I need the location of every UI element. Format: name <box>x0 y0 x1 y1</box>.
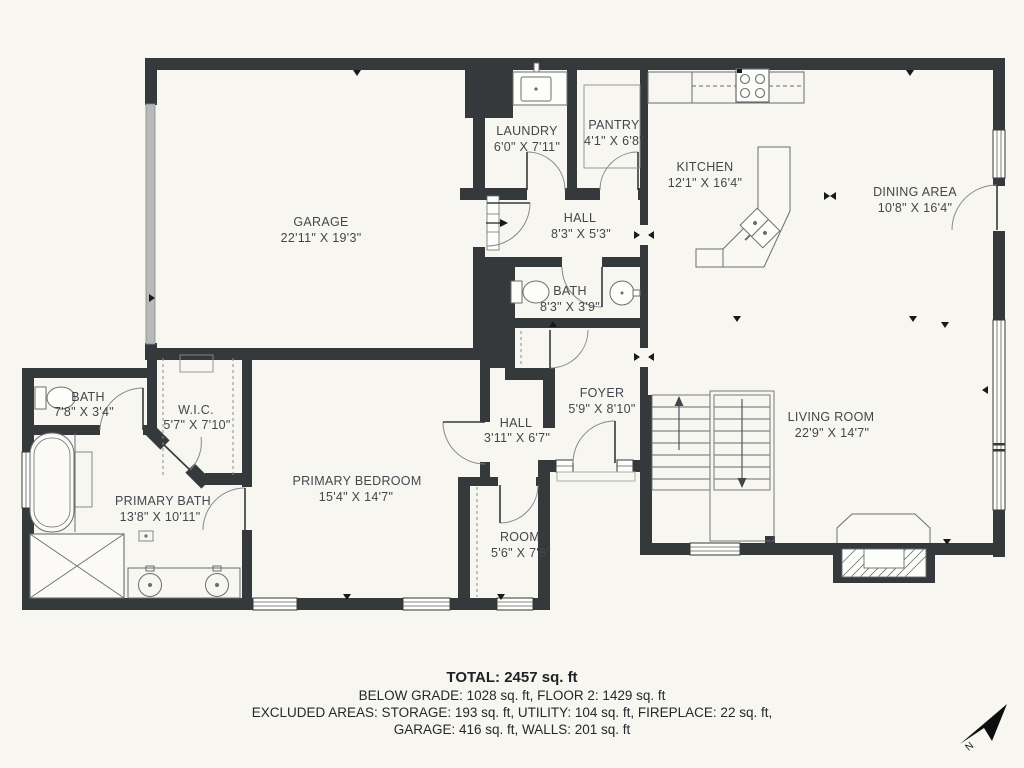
room-dims-bath-upper: 8'3" X 3'9" <box>540 300 600 314</box>
below-grade-text: BELOW GRADE: 1028 sq. ft, FLOOR 2: 1429 … <box>359 688 666 703</box>
room-label-laundry: LAUNDRY <box>496 124 558 138</box>
room-label-hall-upper: HALL <box>564 211 596 225</box>
stove-icon <box>736 69 769 102</box>
window <box>403 598 450 610</box>
room-dims-kitchen: 12'1" X 16'4" <box>668 176 743 190</box>
stairs-up-arrow-icon <box>675 396 684 450</box>
wall-diagonal-segments <box>149 429 206 484</box>
excluded-areas-text-2: GARAGE: 416 sq. ft, WALLS: 201 sq. ft <box>394 722 631 737</box>
bathtub-icon <box>30 433 92 532</box>
window-divider <box>993 443 1005 446</box>
room-label-primary-bath: PRIMARY BATH <box>115 494 211 508</box>
room-label-primary-bedroom: PRIMARY BEDROOM <box>292 474 421 488</box>
room-label-garage: GARAGE <box>293 215 348 229</box>
window <box>993 130 1005 178</box>
window <box>690 543 740 555</box>
door-arc <box>500 485 538 523</box>
room-label-bath-upper: BATH <box>553 284 587 298</box>
room-dims-foyer: 5'9" X 8'10" <box>568 402 635 416</box>
room-dims-hall-upper: 8'3" X 5'3" <box>551 227 611 241</box>
total-area-text: TOTAL: 2457 sq. ft <box>446 669 577 686</box>
north-arrow-icon: N <box>960 704 1007 753</box>
room-dims-primary-bedroom: 15'4" X 14'7" <box>319 490 394 504</box>
floorplan-canvas: GARAGE 22'11" X 19'3" LAUNDRY 6'0" X 7'1… <box>0 0 1024 768</box>
room-dims-wic: 5'7" X 7'10" <box>163 418 230 432</box>
room-label-foyer: FOYER <box>580 386 625 400</box>
room-label-hall-lower: HALL <box>500 416 532 430</box>
garage-door <box>146 104 155 344</box>
room-label-bath-left: BATH <box>71 390 105 404</box>
vanity-double-sink <box>128 566 240 598</box>
room-dims-primary-bath: 13'8" X 10'11" <box>120 510 201 524</box>
room-dims-garage: 22'11" X 19'3" <box>281 231 362 245</box>
bath-sink-icon <box>610 281 640 305</box>
door-arc <box>527 152 565 190</box>
area-summary: TOTAL: 2457 sq. ft BELOW GRADE: 1028 sq.… <box>252 669 772 737</box>
window-divider <box>993 449 1005 452</box>
door-arc <box>443 422 485 464</box>
room-label-room: ROOM <box>500 530 540 544</box>
room-dims-living: 22'9" X 14'7" <box>795 426 870 440</box>
excluded-areas-text: EXCLUDED AREAS: STORAGE: 193 sq. ft, UTI… <box>252 705 772 720</box>
door-arc <box>952 185 997 230</box>
room-dims-dining: 10'8" X 16'4" <box>878 201 953 215</box>
room-dims-hall-lower: 3'11" X 6'7" <box>484 431 550 445</box>
porch-step <box>557 472 635 481</box>
window <box>253 598 297 610</box>
floorplan-page: GARAGE 22'11" X 19'3" LAUNDRY 6'0" X 7'1… <box>0 0 1024 768</box>
room-dims-bath-left: 7'8" X 3'4" <box>54 405 114 419</box>
stairs-down-arrow-icon <box>738 399 747 488</box>
shower-icon <box>30 531 153 598</box>
room-label-kitchen: KITCHEN <box>677 160 734 174</box>
room-dims-laundry: 6'0" X 7'11" <box>494 140 560 154</box>
room-dims-pantry: 4'1" X 6'8" <box>584 134 644 148</box>
door-arc <box>550 330 588 368</box>
room-dims-room: 5'6" X 7'8" <box>491 546 551 560</box>
door-arc <box>573 421 615 463</box>
door-leaf <box>162 443 190 470</box>
window <box>497 598 533 610</box>
north-label: N <box>963 740 976 753</box>
room-label-wic: W.I.C. <box>178 403 214 417</box>
door-arc <box>600 152 638 190</box>
kitchen-counter <box>648 72 804 103</box>
room-label-living: LIVING ROOM <box>788 410 875 424</box>
window <box>993 320 1005 510</box>
room-label-pantry: PANTRY <box>588 118 640 132</box>
room-label-dining: DINING AREA <box>873 185 957 199</box>
staircase <box>652 391 774 541</box>
